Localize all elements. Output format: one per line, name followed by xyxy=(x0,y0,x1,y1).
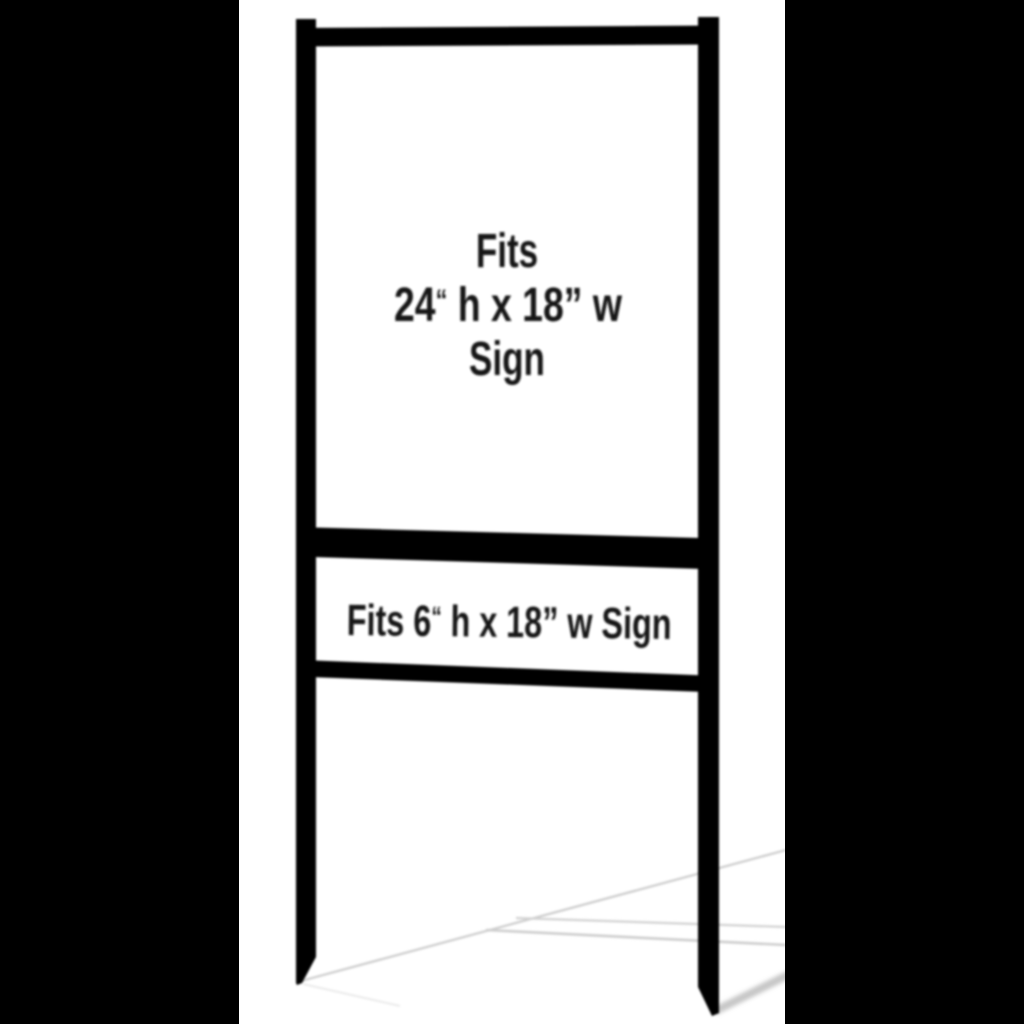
svg-text:24“ h x 18” w: 24“ h x 18” w xyxy=(394,279,623,333)
svg-text:Fits: Fits xyxy=(476,224,538,278)
svg-text:Fits 6“ h x 18” w Sign: Fits 6“ h x 18” w Sign xyxy=(347,596,672,649)
svg-text:Sign: Sign xyxy=(469,332,545,386)
